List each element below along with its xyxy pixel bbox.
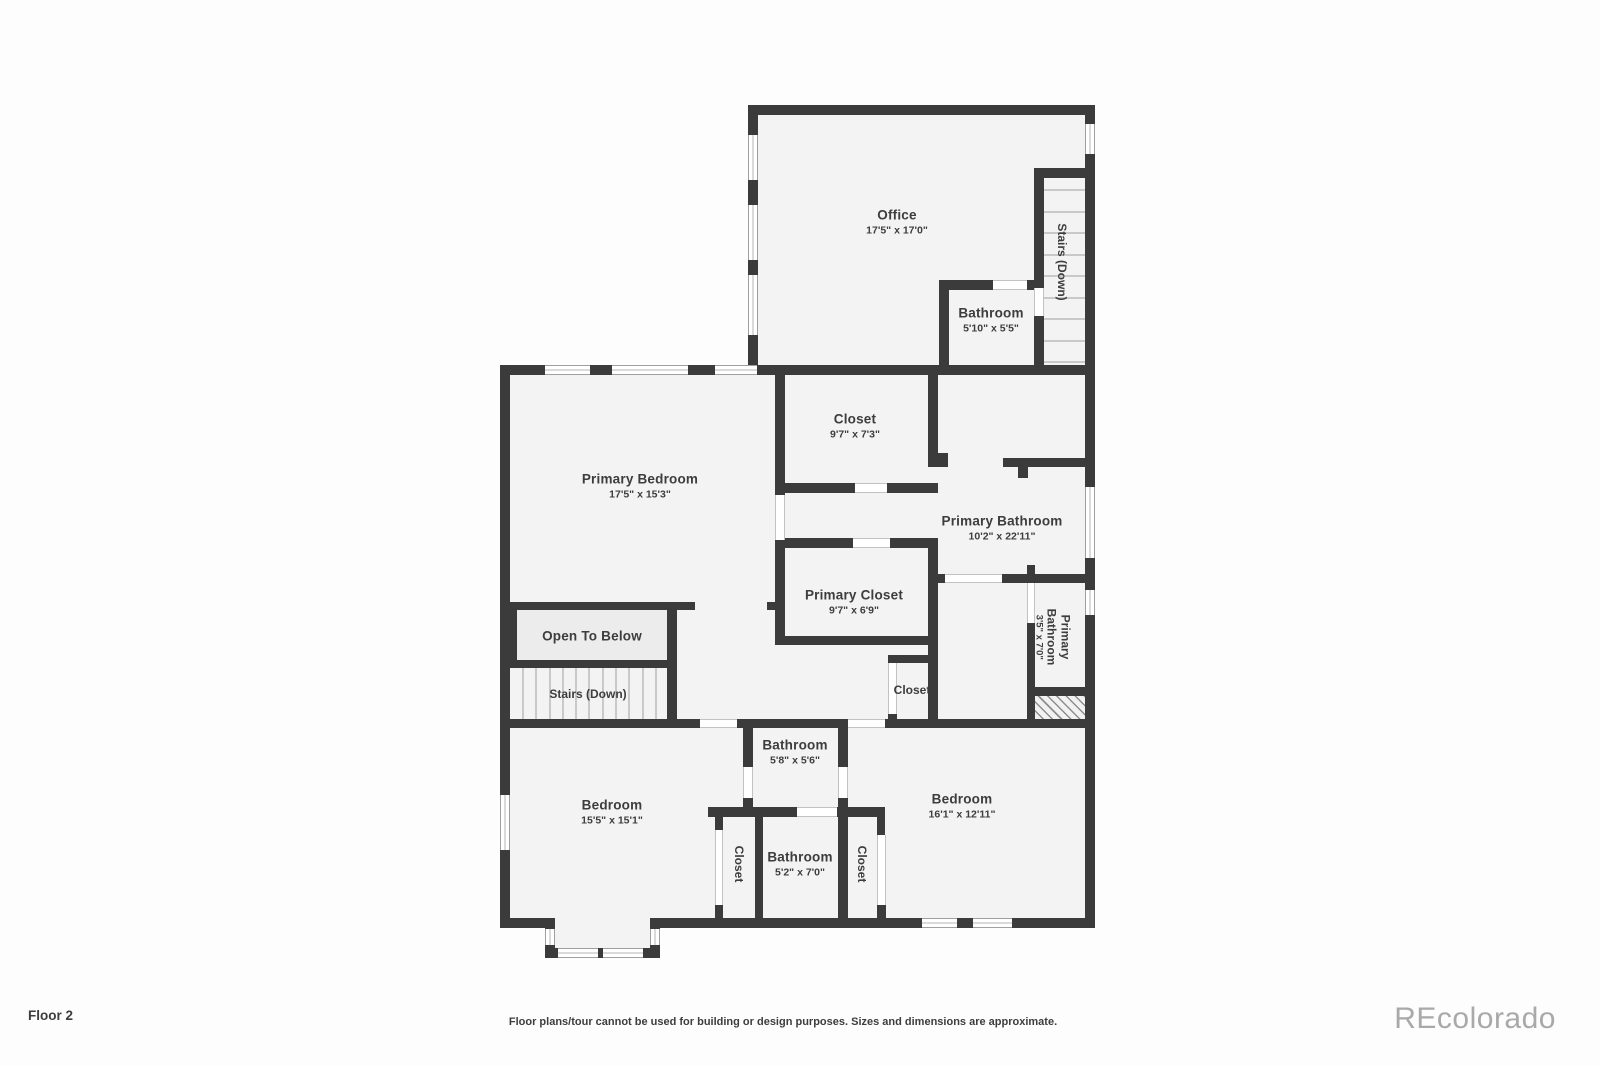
window [558, 948, 598, 958]
room-name: Bathroom [958, 306, 1023, 321]
wall-segment [1027, 280, 1034, 290]
room-name: Bathroom [762, 738, 827, 753]
door-opening [838, 767, 848, 798]
window [545, 929, 555, 945]
door-opening [877, 835, 886, 905]
window [603, 948, 643, 958]
room-label-bedroom-left: Bedroom 15'5" x 15'1" [581, 798, 643, 827]
room-label-primary-bathroom: Primary Bathroom 10'2" x 22'11" [942, 514, 1063, 543]
room-dims: 10'2" x 22'11" [942, 531, 1063, 543]
room-dims: 3'5" x 7'0" [1034, 609, 1045, 666]
wall-segment [775, 365, 785, 495]
room-name: Closet [732, 846, 746, 883]
stair-tread [642, 668, 644, 719]
room-name: Closet [894, 683, 931, 697]
room-dims: 5'8" x 5'6" [762, 755, 827, 767]
wall-segment [775, 538, 853, 548]
room-name: Bathroom [767, 850, 832, 865]
room-name: PrimaryBathroom [1045, 609, 1073, 666]
window [612, 365, 688, 375]
room-dims: 5'10" x 5'5" [958, 323, 1023, 335]
room-label-primary-bedroom: Primary Bedroom 17'5" x 15'3" [582, 472, 698, 501]
stair-tread [655, 668, 657, 719]
wall-segment [1003, 458, 1085, 467]
wall-segment [1034, 168, 1044, 288]
door-opening [1034, 288, 1044, 316]
wall-segment [928, 540, 938, 728]
room-name: Bedroom [581, 798, 643, 813]
disclaimer-text: Floor plans/tour cannot be used for buil… [509, 1016, 1057, 1028]
wall-segment [737, 719, 848, 728]
room-label-closet-right: Closet [855, 846, 869, 883]
hatched-area [1035, 696, 1085, 719]
window [973, 918, 1012, 928]
floor-plan-page: Office 17'5" x 17'0" Bathroom 5'10" x 5'… [0, 0, 1600, 1066]
window [922, 918, 957, 928]
stair-tread [1044, 340, 1085, 342]
floor-area [545, 925, 660, 950]
stair-tread [522, 668, 524, 719]
wall-segment [708, 807, 797, 817]
room-dims: 16'1" x 12'11" [929, 809, 996, 821]
room-name: Primary Bathroom [942, 514, 1063, 529]
window [748, 205, 758, 260]
wall-segment [1027, 565, 1035, 574]
wall-segment [1034, 316, 1044, 375]
room-dims: 17'5" x 15'3" [582, 489, 698, 501]
room-name: Primary Closet [805, 588, 903, 603]
room-label-bathroom-jack: Bathroom 5'8" x 5'6" [762, 738, 827, 767]
wall-segment [1002, 574, 1085, 583]
door-opening [993, 280, 1027, 290]
wall-segment [508, 602, 517, 668]
wall-segment [748, 105, 1095, 115]
window [1085, 487, 1095, 558]
wall-segment [1018, 467, 1028, 478]
wall-segment [650, 918, 1095, 928]
wall-segment [1027, 687, 1085, 696]
room-label-primary-closet: Primary Closet 9'7" x 6'9" [805, 588, 903, 617]
room-label-hall-closet: Closet [894, 683, 931, 697]
room-name: Closet [830, 412, 880, 427]
wall-segment [928, 375, 938, 467]
room-name: Closet [855, 846, 869, 883]
wall-segment [500, 602, 695, 610]
floor-label: Floor 2 [28, 1008, 73, 1023]
wall-segment [755, 817, 763, 918]
window [545, 365, 590, 375]
wall-segment [885, 719, 1095, 728]
stair-tread [1044, 189, 1085, 191]
wall-segment [500, 719, 700, 728]
room-dims: 5'2" x 7'0" [767, 867, 832, 879]
stair-tread [628, 668, 630, 719]
window [500, 795, 510, 850]
room-label-bedroom-right: Bedroom 16'1" x 12'11" [929, 792, 996, 821]
wall-segment [775, 483, 855, 493]
door-opening [743, 767, 753, 798]
window [1085, 124, 1095, 154]
door-opening [797, 807, 837, 817]
window [748, 275, 758, 335]
wall-segment [838, 728, 848, 767]
room-label-office: Office 17'5" x 17'0" [866, 208, 928, 237]
wall-segment [838, 817, 848, 918]
room-dims: 15'5" x 15'1" [581, 815, 643, 827]
stair-tread [1044, 318, 1085, 320]
room-dims: 17'5" x 17'0" [866, 225, 928, 237]
room-name: Office [866, 208, 928, 223]
wall-segment [767, 602, 775, 610]
wall-segment [887, 483, 938, 493]
room-label-office-bathroom: Bathroom 5'10" x 5'5" [958, 306, 1023, 335]
wall-segment [928, 574, 945, 583]
room-label-closet-left: Closet [732, 846, 746, 883]
window [650, 929, 660, 945]
room-label-open-to-below: Open To Below [542, 629, 642, 644]
room-name: Primary Bedroom [582, 472, 698, 487]
room-label-stairs-middle: Stairs (Down) [549, 687, 626, 701]
wall-segment [508, 660, 677, 668]
room-label-bathroom-lower: Bathroom 5'2" x 7'0" [767, 850, 832, 879]
room-label-primary-bathroom-small: PrimaryBathroom 3'5" x 7'0" [1034, 609, 1073, 666]
wall-segment [775, 636, 938, 645]
room-name: Stairs (Down) [1055, 223, 1069, 300]
door-opening [945, 574, 1002, 583]
door-opening [853, 538, 890, 548]
wall-segment [888, 655, 938, 663]
door-opening [775, 495, 785, 540]
wall-segment [715, 905, 723, 918]
wall-segment [890, 538, 938, 548]
window [1085, 590, 1095, 615]
door-opening [715, 830, 723, 905]
wall-segment [743, 728, 753, 767]
wall-segment [939, 280, 949, 375]
wall-segment [877, 905, 886, 918]
recolorado-watermark: REcolorado [1394, 1002, 1556, 1036]
wall-segment [715, 817, 723, 830]
window [715, 365, 757, 375]
wall-segment [939, 280, 993, 290]
room-dims: 9'7" x 7'3" [830, 429, 880, 441]
stair-tread [1044, 361, 1085, 363]
wall-segment [837, 807, 885, 817]
wall-segment [938, 453, 948, 467]
wall-segment [877, 817, 885, 835]
wall-segment [775, 538, 785, 645]
door-opening [855, 483, 887, 493]
room-label-closet-upper: Closet 9'7" x 7'3" [830, 412, 880, 441]
room-name: Bedroom [929, 792, 996, 807]
room-label-stairs-upper: Stairs (Down) [1055, 223, 1069, 300]
door-opening [700, 719, 737, 728]
room-name: Open To Below [542, 629, 642, 644]
stair-tread [1044, 211, 1085, 213]
room-dims: 9'7" x 6'9" [805, 605, 903, 617]
window [748, 135, 758, 180]
room-name: Stairs (Down) [549, 687, 626, 701]
stair-tread [535, 668, 537, 719]
door-opening [848, 719, 885, 728]
